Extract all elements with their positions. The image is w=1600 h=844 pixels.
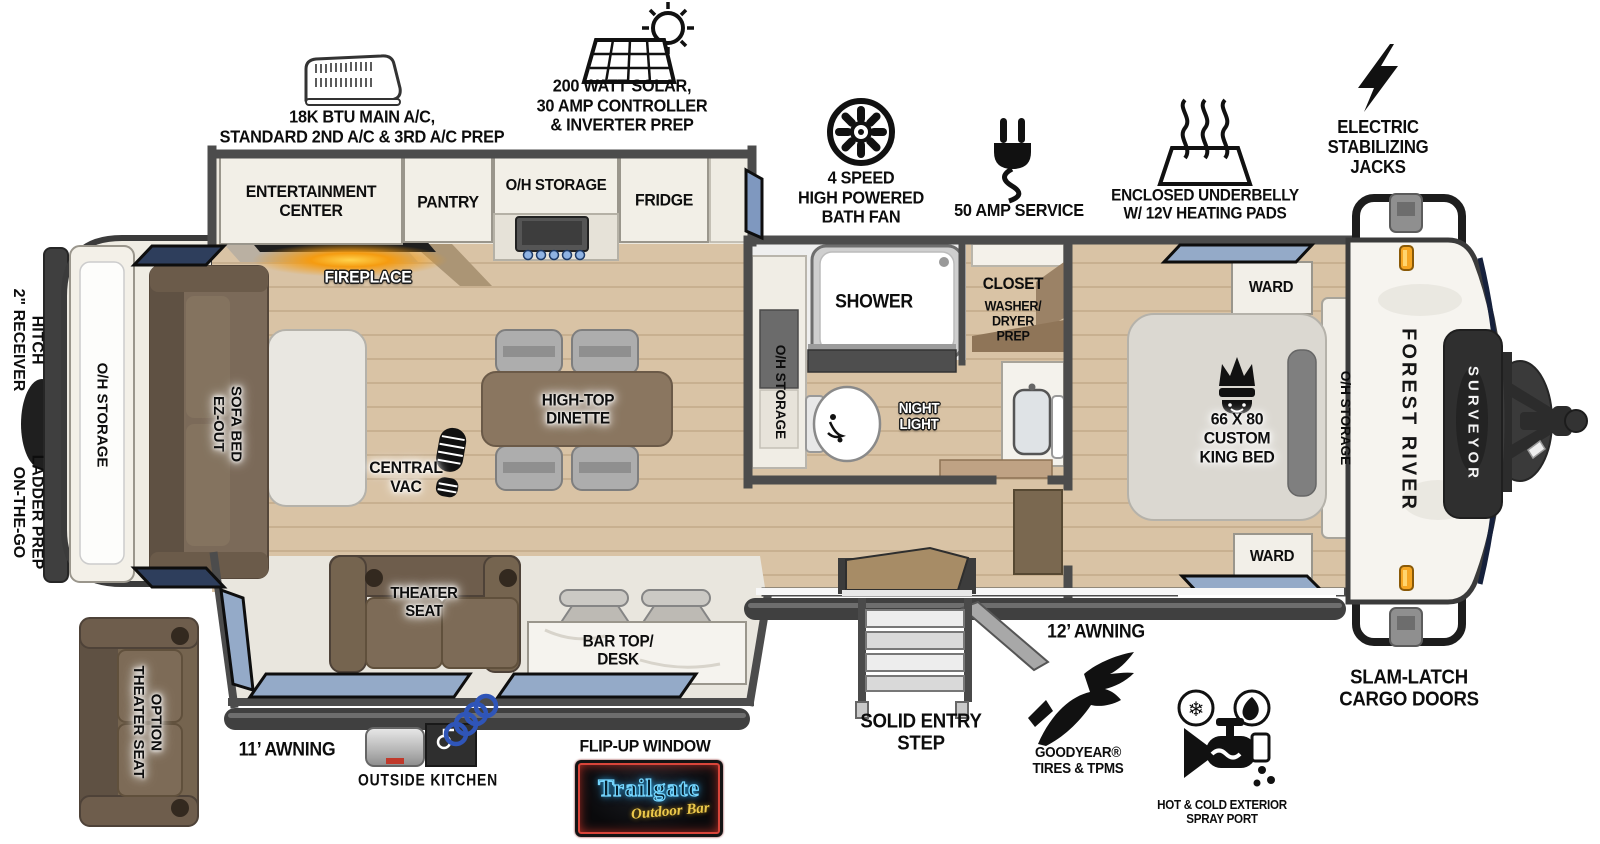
callout-bath-fan: 4 SPEED HIGH POWERED BATH FAN (798, 169, 924, 228)
bath-counter (808, 344, 956, 372)
label-ward-bottom: WARD (1250, 548, 1294, 566)
label-awning-11: 11’ AWNING (239, 739, 336, 760)
trailgate-logo-title: Trailgate (598, 777, 700, 801)
brand-surveyor: SURVEYOR (1464, 366, 1481, 482)
label-oh-storage-kitchen: O/H STORAGE (506, 177, 607, 195)
svg-text:❄: ❄ (1188, 697, 1205, 721)
brand-forest-river: FOREST RIVER (1397, 328, 1420, 512)
label-fireplace: FIREPLACE (324, 267, 411, 286)
label-theater-option: THEATER SEAT OPTION (130, 666, 165, 779)
bath-sink-icon (1002, 362, 1064, 466)
label-bar-desk: BAR TOP/ DESK (583, 633, 654, 670)
label-ladder-prep: ON-THE-GO LADDER PREP (9, 455, 46, 570)
entry-step-icon (856, 598, 972, 718)
lightning-bolt-icon (1358, 44, 1398, 112)
outside-kitchen-icon (366, 696, 496, 766)
label-entertainment: ENTERTAINMENT CENTER (246, 182, 376, 220)
label-dinette: HIGH-TOP DINETTE (542, 392, 615, 429)
label-shower: SHOWER (835, 291, 913, 312)
goodyear-wingfoot-icon (1028, 652, 1134, 746)
label-sofa-bed: EZ-OUT SOFA BED (210, 386, 245, 462)
label-night-light: NIGHT LIGHT (899, 401, 940, 433)
callout-ac: 18K BTU MAIN A/C, STANDARD 2ND A/C & 3RD… (220, 107, 505, 146)
label-washer-dryer-prep: WASHER/ DRYER PREP (985, 298, 1042, 343)
toilet-icon (806, 387, 880, 461)
trailgate-outdoor-bar-logo: Trailgate Outdoor Bar (575, 760, 723, 837)
cooktop-icon (494, 214, 618, 260)
label-fridge: FRIDGE (635, 190, 693, 209)
solar-panel-icon (584, 2, 694, 82)
label-ward-top: WARD (1249, 279, 1293, 297)
label-outside-kitchen: OUTSIDE KITCHEN (358, 770, 498, 789)
callout-50amp: 50 AMP SERVICE (954, 201, 1084, 221)
awning-12-icon (744, 588, 1346, 670)
label-oh-storage-rear: O/H STORAGE (93, 363, 110, 468)
label-oh-storage-bed: O/H STORAGE (1337, 371, 1353, 465)
spray-port-icon: ❄ (1179, 691, 1275, 787)
rv-floorplan: ❄ (0, 0, 1600, 844)
label-spray-port: HOT & COLD EXTERIOR SPRAY PORT (1157, 798, 1287, 826)
bath-fan-icon (830, 101, 892, 163)
label-goodyear: GOODYEAR® TIRES & TPMS (1032, 745, 1123, 777)
label-pantry: PANTRY (417, 192, 479, 211)
label-flip-window: FLIP-UP WINDOW (579, 736, 710, 755)
label-awning-12: 12’ AWNING (1047, 621, 1145, 642)
callout-solar: 200 WATT SOLAR, 30 AMP CONTROLLER & INVE… (537, 77, 708, 136)
label-theater-seat: THEATER SEAT (390, 585, 457, 621)
label-closet: CLOSET (983, 275, 1044, 293)
label-receiver-hitch: 2" RECEIVER HITCH (9, 289, 46, 392)
heated-underbelly-icon (1160, 100, 1250, 184)
callout-underbelly: ENCLOSED UNDERBELLY W/ 12V HEATING PADS (1111, 187, 1299, 224)
label-king-bed: 66 X 80 CUSTOM KING BED (1199, 409, 1274, 466)
callout-stab-jacks: ELECTRIC STABILIZING JACKS (1328, 117, 1429, 177)
label-slam-latch: SLAM-LATCH CARGO DOORS (1339, 667, 1479, 712)
label-central-vac: CENTRAL VAC (369, 458, 443, 496)
label-oh-storage-bath: O/H STORAGE (772, 345, 788, 439)
power-plug-icon (994, 118, 1031, 201)
trailgate-logo-subtitle: Outdoor Bar (631, 799, 721, 824)
label-solid-step: SOLID ENTRY STEP (860, 711, 981, 756)
ac-unit-icon (306, 56, 400, 105)
